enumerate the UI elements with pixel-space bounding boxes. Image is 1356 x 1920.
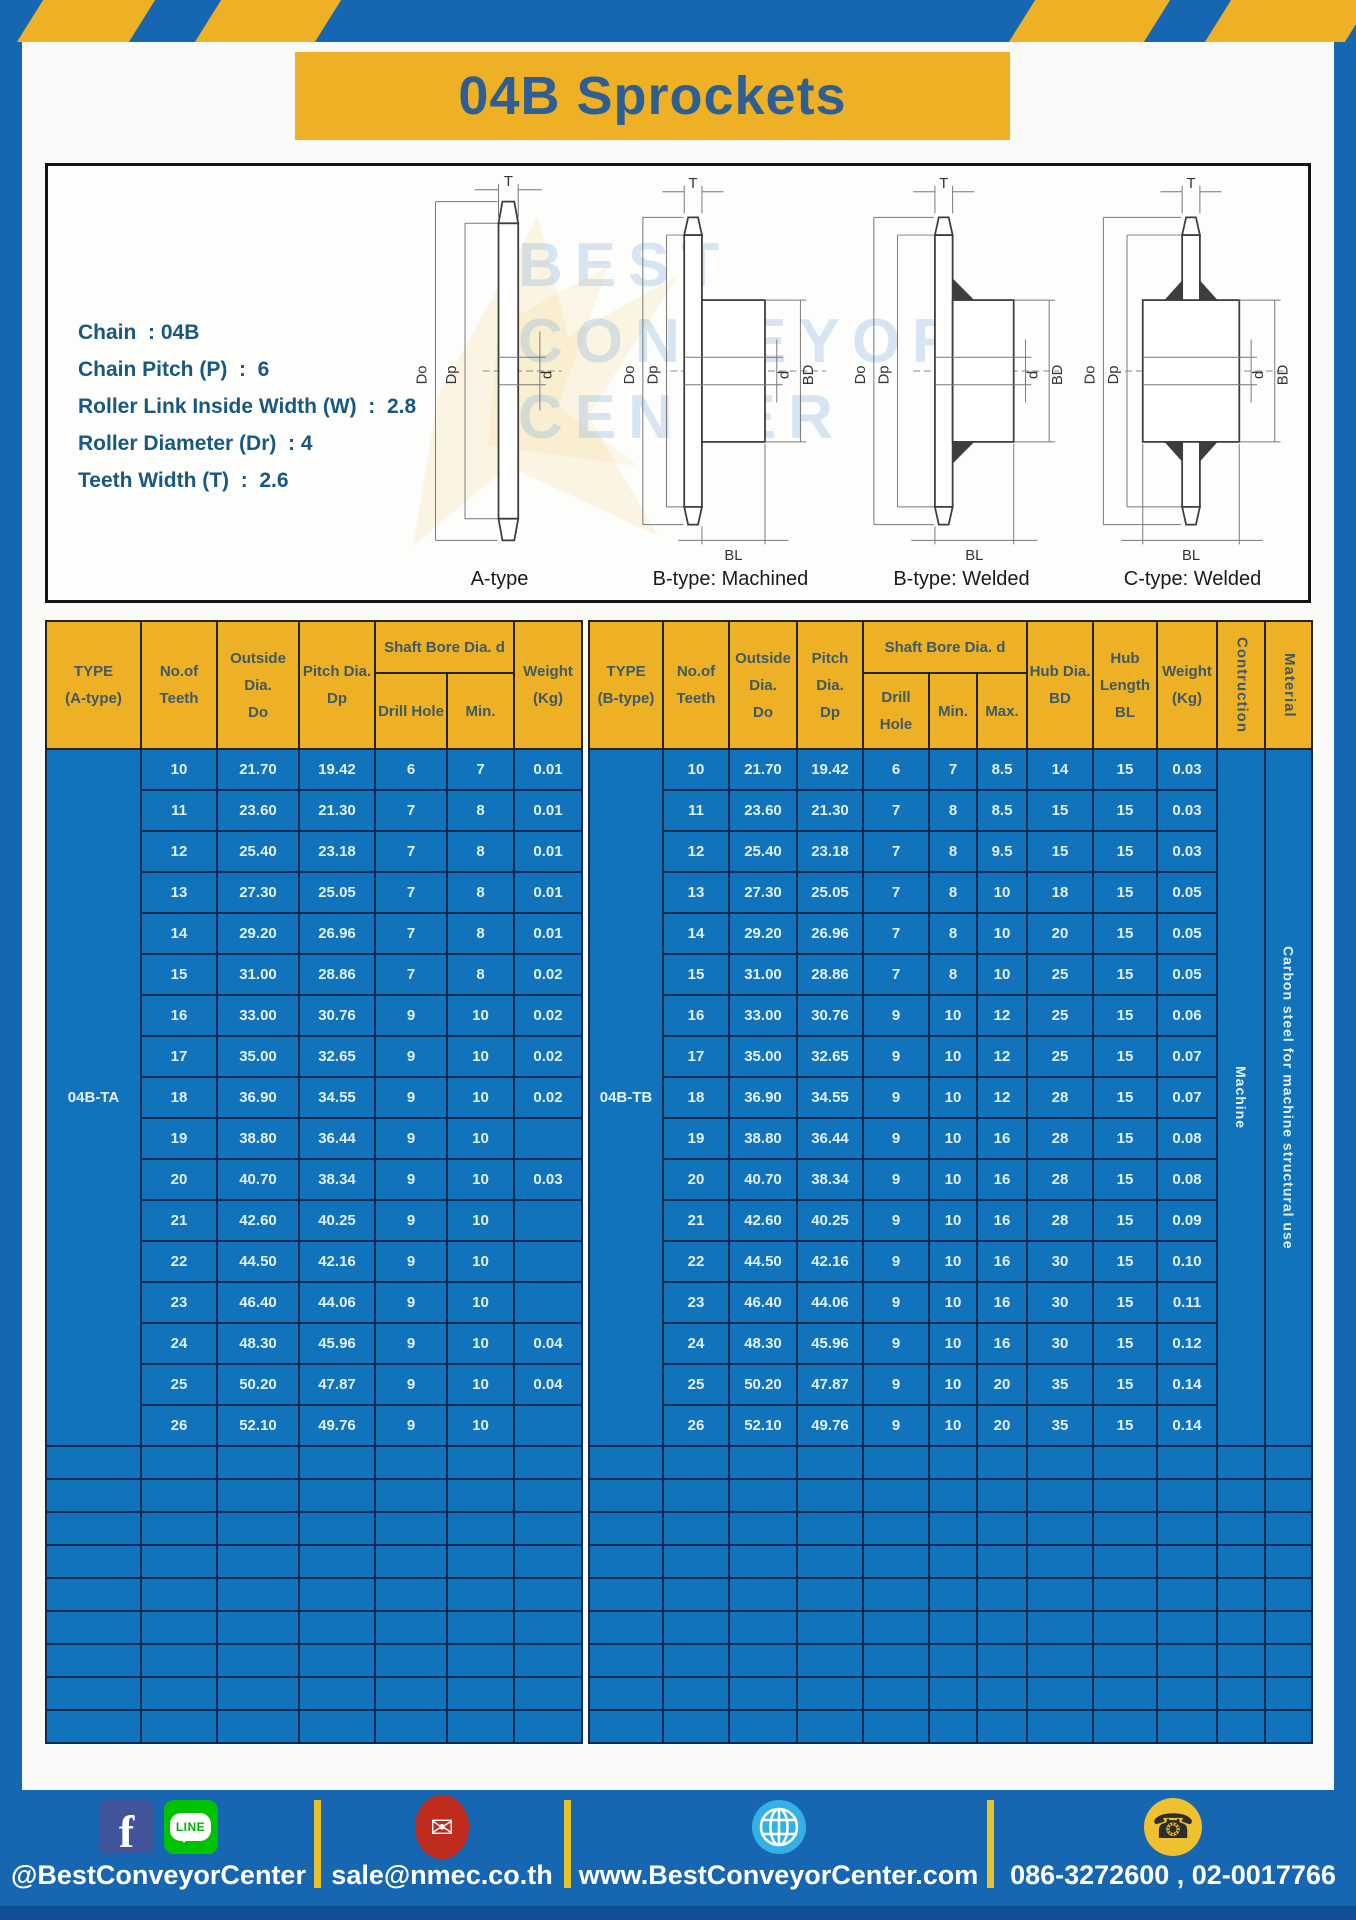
cell: 9 [375, 1200, 447, 1241]
empty-cell [663, 1677, 729, 1710]
header-hub-length: Hub Length BL [1093, 621, 1157, 749]
cell: 8 [447, 831, 514, 872]
empty-cell [1093, 1578, 1157, 1611]
table-row: 1531.0028.86781025150.05 [589, 954, 1312, 995]
cell: 14 [663, 913, 729, 954]
cell: 26 [141, 1405, 217, 1446]
cell: 26.96 [797, 913, 863, 954]
cell: 9 [863, 1118, 929, 1159]
spec-chain: Chain : 04B [78, 314, 416, 351]
header-teeth: No.of Teeth [141, 621, 217, 749]
empty-cell [1265, 1644, 1312, 1677]
empty-cell [447, 1578, 514, 1611]
cell: 42.16 [797, 1241, 863, 1282]
b-type-machined-drawing: Do Dp T d [615, 174, 846, 566]
empty-cell [1027, 1677, 1093, 1710]
empty-cell [929, 1512, 977, 1545]
cell: 10 [929, 1200, 977, 1241]
empty-cell [217, 1677, 299, 1710]
cell: 7 [929, 749, 977, 790]
empty-cell [1217, 1578, 1265, 1611]
cell: 11 [663, 790, 729, 831]
table-row: 04B-TA1021.7019.42670.01 [46, 749, 582, 790]
empty-cell [663, 1545, 729, 1578]
cell: 15 [1093, 1200, 1157, 1241]
cell: 9 [863, 1159, 929, 1200]
empty-cell [977, 1512, 1027, 1545]
empty-cell [589, 1479, 663, 1512]
cell: 12 [977, 1036, 1027, 1077]
empty-cell [1093, 1545, 1157, 1578]
cell: 19 [663, 1118, 729, 1159]
empty-cell [514, 1479, 582, 1512]
empty-table-row [589, 1446, 1312, 1479]
empty-cell [141, 1611, 217, 1644]
line-bubble: LINE [170, 1813, 211, 1841]
empty-cell [1027, 1545, 1093, 1578]
empty-table-row [46, 1446, 582, 1479]
cell: 38.34 [797, 1159, 863, 1200]
cell: 14 [141, 913, 217, 954]
table-row: 04B-TB1021.7019.42678.514150.03MachineCa… [589, 749, 1312, 790]
cell: 10 [929, 1077, 977, 1118]
empty-cell [729, 1545, 797, 1578]
cell: 8 [929, 954, 977, 995]
empty-cell [1027, 1578, 1093, 1611]
empty-cell [1265, 1479, 1312, 1512]
cell: 45.96 [299, 1323, 375, 1364]
cell: 10 [447, 1118, 514, 1159]
empty-cell [141, 1578, 217, 1611]
cell: 40.70 [729, 1159, 797, 1200]
empty-cell [797, 1512, 863, 1545]
cell: 28 [1027, 1077, 1093, 1118]
empty-cell [447, 1644, 514, 1677]
footer-divider [987, 1800, 994, 1888]
cell: 25.40 [729, 831, 797, 872]
cell: 0.01 [514, 790, 582, 831]
b-type-welded-drawing: Do Dp T [846, 174, 1077, 566]
dim-label-dp: Dp [646, 365, 662, 384]
cell: 44.06 [797, 1282, 863, 1323]
empty-cell [977, 1479, 1027, 1512]
cell: 7 [863, 790, 929, 831]
empty-cell [217, 1512, 299, 1545]
cell: 15 [1027, 790, 1093, 831]
cell: 25 [1027, 1036, 1093, 1077]
empty-cell [375, 1677, 447, 1710]
cell: 9 [863, 1036, 929, 1077]
b-type-table: TYPE (B-type) No.of Teeth Outside Dia. D… [588, 620, 1313, 1744]
c-type-welded-drawing: Do Dp T [1077, 174, 1308, 566]
footer-divider [314, 1800, 321, 1888]
cell: 22 [663, 1241, 729, 1282]
cell: 9 [863, 1200, 929, 1241]
table-row: 2346.4044.069101630150.11 [589, 1282, 1312, 1323]
cell: 44.50 [729, 1241, 797, 1282]
empty-cell [977, 1578, 1027, 1611]
cell: 10 [141, 749, 217, 790]
cell: 15 [1093, 913, 1157, 954]
empty-cell [1217, 1446, 1265, 1479]
cell: 0.06 [1157, 995, 1217, 1036]
cell: 15 [1093, 1241, 1157, 1282]
cell: 18 [141, 1077, 217, 1118]
empty-cell [797, 1578, 863, 1611]
cell: 19.42 [299, 749, 375, 790]
cell: 28 [1027, 1118, 1093, 1159]
empty-cell [217, 1479, 299, 1512]
cell: 15 [1093, 1282, 1157, 1323]
empty-cell [729, 1611, 797, 1644]
empty-cell [141, 1644, 217, 1677]
cell: 25 [1027, 954, 1093, 995]
website-url[interactable]: www.BestConveyorCenter.com [579, 1860, 979, 1891]
empty-cell [929, 1446, 977, 1479]
empty-cell [1157, 1512, 1217, 1545]
empty-cell [797, 1545, 863, 1578]
yellow-stripe [13, 0, 159, 42]
cell: 36.90 [217, 1077, 299, 1118]
empty-cell [141, 1710, 217, 1743]
empty-cell [447, 1677, 514, 1710]
table-row: 1123.6021.30788.515150.03 [589, 790, 1312, 831]
cell: 15 [1093, 1405, 1157, 1446]
empty-cell [375, 1479, 447, 1512]
caption-b-type-machined: B-type: Machined [653, 568, 809, 591]
cell: 7 [863, 831, 929, 872]
empty-cell [375, 1578, 447, 1611]
cell: 18 [1027, 872, 1093, 913]
yellow-stripe [1201, 0, 1356, 42]
cell: 27.30 [729, 872, 797, 913]
cell: 10 [929, 1241, 977, 1282]
empty-cell [1265, 1446, 1312, 1479]
empty-cell [1093, 1479, 1157, 1512]
empty-cell [141, 1479, 217, 1512]
cell: 38.80 [729, 1118, 797, 1159]
email-icon[interactable]: ✉ [415, 1795, 469, 1859]
empty-cell [863, 1644, 929, 1677]
social-icons: f LINE [100, 1798, 218, 1856]
cell: 0.03 [1157, 749, 1217, 790]
cell: 15 [1093, 790, 1157, 831]
cell: 30.76 [797, 995, 863, 1036]
header-max: Max. [977, 673, 1027, 749]
cell: 28.86 [797, 954, 863, 995]
empty-table-row [589, 1644, 1312, 1677]
empty-cell [729, 1710, 797, 1743]
empty-cell [589, 1545, 663, 1578]
cell: 9 [375, 1241, 447, 1282]
empty-cell [217, 1644, 299, 1677]
cell: 44.50 [217, 1241, 299, 1282]
cell: 15 [1093, 872, 1157, 913]
empty-cell [589, 1644, 663, 1677]
cell: 10 [977, 913, 1027, 954]
cell: 52.10 [729, 1405, 797, 1446]
cell: 0.12 [1157, 1323, 1217, 1364]
caption-c-type-welded: C-type: Welded [1124, 568, 1261, 591]
empty-cell [1265, 1677, 1312, 1710]
empty-cell [589, 1578, 663, 1611]
dim-label-do: Do [1083, 365, 1099, 384]
cell: 10 [929, 1282, 977, 1323]
empty-cell [1157, 1710, 1217, 1743]
cell: 9 [375, 995, 447, 1036]
dim-label-t: T [939, 176, 948, 192]
empty-cell [46, 1512, 141, 1545]
empty-table-row [46, 1545, 582, 1578]
cell: 0.09 [1157, 1200, 1217, 1241]
cell: 20 [663, 1159, 729, 1200]
empty-table-row [46, 1479, 582, 1512]
cell: 7 [375, 831, 447, 872]
cell: 48.30 [729, 1323, 797, 1364]
globe-icon[interactable] [751, 1799, 807, 1855]
empty-cell [141, 1512, 217, 1545]
empty-cell [1093, 1446, 1157, 1479]
cell: 9 [375, 1364, 447, 1405]
empty-cell [863, 1446, 929, 1479]
table-row: 2550.2047.879102035150.14 [589, 1364, 1312, 1405]
cell: 49.76 [797, 1405, 863, 1446]
cell: 34.55 [797, 1077, 863, 1118]
cell: 8 [929, 831, 977, 872]
header-material: Material [1265, 621, 1312, 749]
line-icon[interactable]: LINE [164, 1800, 218, 1854]
dim-label-d: d [540, 371, 556, 379]
empty-cell [1217, 1512, 1265, 1545]
top-stripe-band [0, 0, 1356, 42]
empty-cell [589, 1446, 663, 1479]
empty-cell [797, 1710, 863, 1743]
cell: 16 [141, 995, 217, 1036]
cell: 0.07 [1157, 1036, 1217, 1077]
empty-table-row [589, 1677, 1312, 1710]
cell: 31.00 [729, 954, 797, 995]
cell: 25.05 [299, 872, 375, 913]
empty-cell [797, 1611, 863, 1644]
empty-cell [514, 1446, 582, 1479]
cell: 10 [447, 1241, 514, 1282]
header-pitch: Pitch Dia. Dp [797, 621, 863, 749]
empty-cell [729, 1446, 797, 1479]
empty-cell [514, 1677, 582, 1710]
empty-cell [514, 1611, 582, 1644]
cell: 0.08 [1157, 1159, 1217, 1200]
empty-cell [797, 1644, 863, 1677]
cell: 23.18 [797, 831, 863, 872]
empty-cell [729, 1644, 797, 1677]
header-weight: Weight (Kg) [1157, 621, 1217, 749]
cell: 9 [375, 1282, 447, 1323]
empty-cell [375, 1545, 447, 1578]
table-row: 2448.3045.969101630150.12 [589, 1323, 1312, 1364]
footer-phone: ☎ 086-3272600 , 02-0017766 [990, 1792, 1356, 1906]
cell: 9 [863, 1241, 929, 1282]
empty-table-row [46, 1644, 582, 1677]
empty-cell [863, 1545, 929, 1578]
empty-cell [299, 1611, 375, 1644]
dim-label-dp: Dp [877, 365, 893, 384]
cell: 0.02 [514, 1077, 582, 1118]
cell: 9 [863, 1323, 929, 1364]
empty-cell [46, 1545, 141, 1578]
cell: 8 [447, 790, 514, 831]
empty-cell [929, 1578, 977, 1611]
empty-cell [863, 1611, 929, 1644]
cell: 9.5 [977, 831, 1027, 872]
cell: 9 [863, 1405, 929, 1446]
cell: 18 [663, 1077, 729, 1118]
cell: 9 [375, 1323, 447, 1364]
cell: 10 [447, 1200, 514, 1241]
drawing-b-type-machined: Do Dp T d [615, 174, 846, 598]
empty-cell [589, 1512, 663, 1545]
cell: 38.80 [217, 1118, 299, 1159]
catalog-page: { "page": { "title": "04B Sprockets" }, … [0, 0, 1356, 1920]
empty-table-row [46, 1710, 582, 1743]
email-address[interactable]: sale@nmec.co.th [331, 1860, 552, 1891]
empty-cell [729, 1512, 797, 1545]
cell [514, 1118, 582, 1159]
cell: 8.5 [977, 790, 1027, 831]
cell: 12 [141, 831, 217, 872]
cell: 8 [447, 913, 514, 954]
header-pitch: Pitch Dia. Dp [299, 621, 375, 749]
empty-cell [663, 1611, 729, 1644]
cell: 25 [663, 1364, 729, 1405]
empty-cell [447, 1710, 514, 1743]
cell: 10 [447, 995, 514, 1036]
cell: 9 [375, 1118, 447, 1159]
social-handle[interactable]: @BestConveyorCenter [11, 1860, 306, 1891]
cell: 7 [447, 749, 514, 790]
cell: 0.10 [1157, 1241, 1217, 1282]
dim-label-do: Do [622, 365, 638, 384]
cell: 7 [375, 790, 447, 831]
cell: 8 [929, 913, 977, 954]
empty-cell [1157, 1479, 1217, 1512]
cell: 7 [863, 913, 929, 954]
drawing-b-type-welded: Do Dp T [846, 174, 1077, 598]
cell: 48.30 [217, 1323, 299, 1364]
cell: 0.01 [514, 749, 582, 790]
cell: 0.03 [1157, 790, 1217, 831]
cell: 0.11 [1157, 1282, 1217, 1323]
cell: 7 [863, 954, 929, 995]
cell: 42.16 [299, 1241, 375, 1282]
yellow-stripe [1005, 0, 1174, 42]
header-shaft-bore: Shaft Bore Dia. d [863, 621, 1027, 673]
phone-icon[interactable]: ☎ [1144, 1798, 1202, 1856]
cell: 21 [663, 1200, 729, 1241]
caption-b-type-welded: B-type: Welded [893, 568, 1029, 591]
empty-cell [299, 1446, 375, 1479]
cell: 16 [977, 1200, 1027, 1241]
cell: 15 [1093, 995, 1157, 1036]
cell: 42.60 [729, 1200, 797, 1241]
footer-website: www.BestConveyorCenter.com [567, 1792, 990, 1906]
cell: 45.96 [797, 1323, 863, 1364]
drawing-c-type-welded: Do Dp T [1077, 174, 1308, 598]
empty-cell [1265, 1710, 1312, 1743]
cell: 47.87 [797, 1364, 863, 1405]
empty-cell [141, 1545, 217, 1578]
cell: 19.42 [797, 749, 863, 790]
cell: 36.44 [299, 1118, 375, 1159]
cell: 7 [375, 954, 447, 995]
phone-numbers[interactable]: 086-3272600 , 02-0017766 [1010, 1860, 1336, 1891]
cell: 16 [977, 1282, 1027, 1323]
empty-cell [46, 1446, 141, 1479]
empty-cell [447, 1479, 514, 1512]
footer-social: f LINE @BestConveyorCenter [0, 1792, 317, 1906]
table-row: 2040.7038.349101628150.08 [589, 1159, 1312, 1200]
cell: 30 [1027, 1241, 1093, 1282]
a-type-table: TYPE (A-type) No.of Teeth Outside Dia. D… [45, 620, 583, 1744]
empty-cell [929, 1545, 977, 1578]
table-row: 1938.8036.449101628150.08 [589, 1118, 1312, 1159]
cell: 10 [447, 1364, 514, 1405]
cell: 15 [1093, 1077, 1157, 1118]
empty-cell [375, 1710, 447, 1743]
cell: 0.01 [514, 872, 582, 913]
empty-cell [1157, 1446, 1217, 1479]
dim-label-bd: BD [1050, 365, 1066, 386]
empty-cell [977, 1446, 1027, 1479]
cell: 0.02 [514, 995, 582, 1036]
cell: 40.25 [797, 1200, 863, 1241]
empty-cell [1093, 1644, 1157, 1677]
cell: 26 [663, 1405, 729, 1446]
cell: 21.70 [729, 749, 797, 790]
facebook-icon[interactable]: f [100, 1800, 154, 1854]
empty-cell [929, 1677, 977, 1710]
empty-cell [447, 1545, 514, 1578]
cell: 23.60 [217, 790, 299, 831]
empty-cell [1027, 1710, 1093, 1743]
header-construction: Contruction [1217, 621, 1265, 749]
cell: 46.40 [729, 1282, 797, 1323]
cell: 8 [929, 790, 977, 831]
cell: 29.20 [729, 913, 797, 954]
cell: 10 [447, 1036, 514, 1077]
dim-label-t: T [689, 176, 698, 192]
cell: 35.00 [217, 1036, 299, 1077]
empty-cell [447, 1512, 514, 1545]
header-drill-hole: Drill Hole [375, 673, 447, 749]
sprocket-drawings: Do Dp T d A-type [384, 174, 1308, 598]
empty-cell [514, 1578, 582, 1611]
empty-cell [299, 1578, 375, 1611]
cell: 26.96 [299, 913, 375, 954]
empty-table-row [589, 1611, 1312, 1644]
empty-cell [141, 1677, 217, 1710]
cell: 0.07 [1157, 1077, 1217, 1118]
header-type: TYPE (B-type) [589, 621, 663, 749]
a-type-drawing: Do Dp T d [384, 174, 615, 566]
empty-cell [663, 1644, 729, 1677]
dim-label-bd: BD [801, 365, 817, 386]
cell: 28.86 [299, 954, 375, 995]
cell: 0.01 [514, 831, 582, 872]
cell: 15 [1093, 1118, 1157, 1159]
empty-cell [1093, 1611, 1157, 1644]
empty-cell [663, 1512, 729, 1545]
cell: 9 [863, 1364, 929, 1405]
